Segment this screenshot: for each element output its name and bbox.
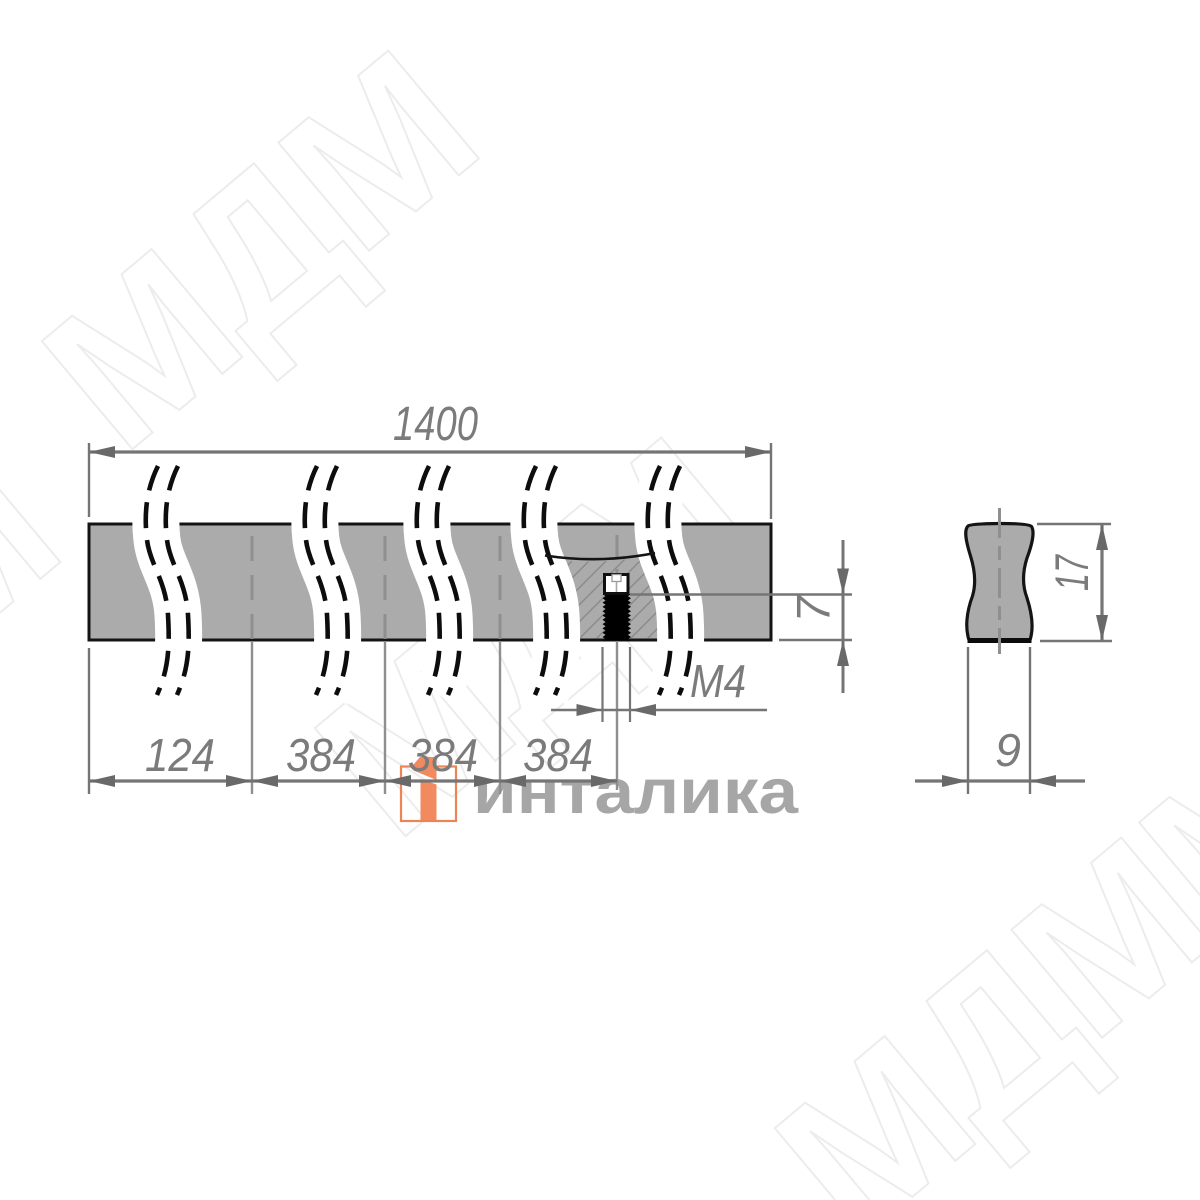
svg-text:9: 9 — [995, 724, 1021, 776]
svg-text:1400: 1400 — [393, 398, 478, 451]
svg-text:17: 17 — [1045, 554, 1098, 591]
svg-text:7: 7 — [787, 595, 840, 623]
svg-text:384: 384 — [408, 729, 478, 781]
svg-text:384: 384 — [523, 729, 593, 781]
svg-text:инталика: инталика — [473, 757, 799, 827]
svg-text:384: 384 — [286, 729, 356, 781]
svg-text:124: 124 — [145, 729, 215, 781]
svg-text:M4: M4 — [690, 655, 746, 707]
